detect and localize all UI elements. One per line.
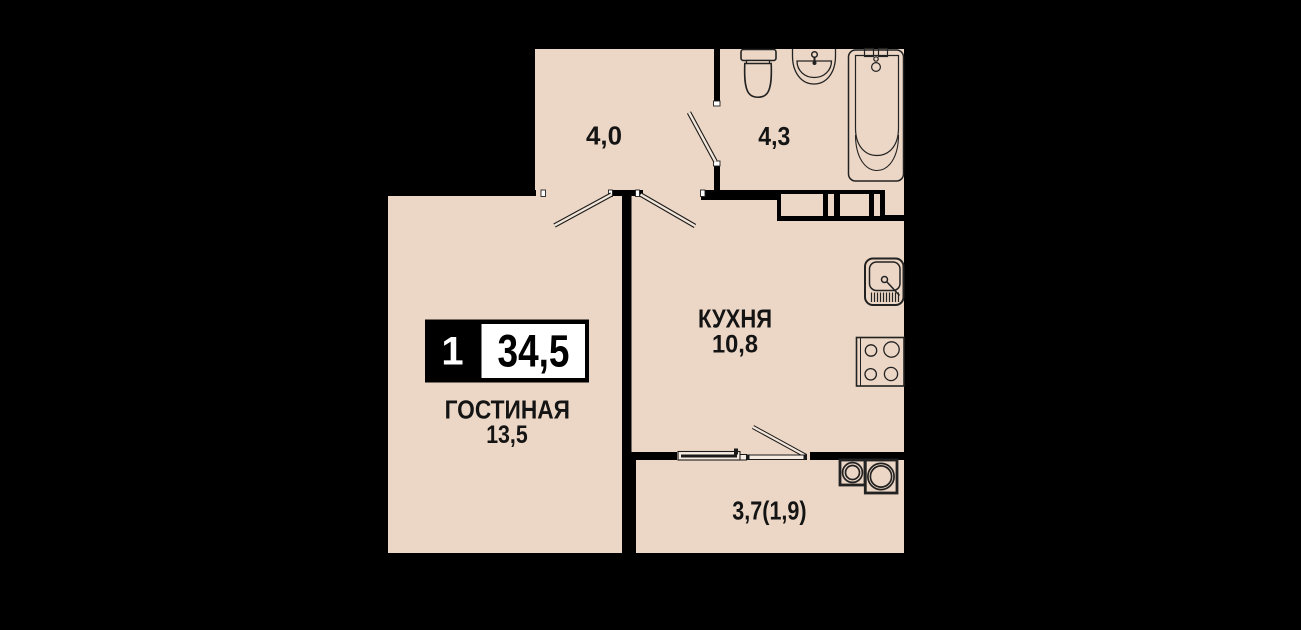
svg-text:34,5: 34,5 [498, 326, 570, 377]
svg-text:ГОСТИНАЯ: ГОСТИНАЯ [445, 395, 570, 425]
svg-text:10,8: 10,8 [712, 330, 758, 358]
svg-text:13,5: 13,5 [486, 421, 528, 449]
svg-text:3,7(1,9): 3,7(1,9) [732, 495, 806, 525]
svg-text:4,0: 4,0 [586, 121, 622, 151]
svg-text:1: 1 [441, 330, 463, 374]
svg-text:4,3: 4,3 [758, 121, 790, 151]
svg-text:КУХНЯ: КУХНЯ [698, 304, 772, 334]
